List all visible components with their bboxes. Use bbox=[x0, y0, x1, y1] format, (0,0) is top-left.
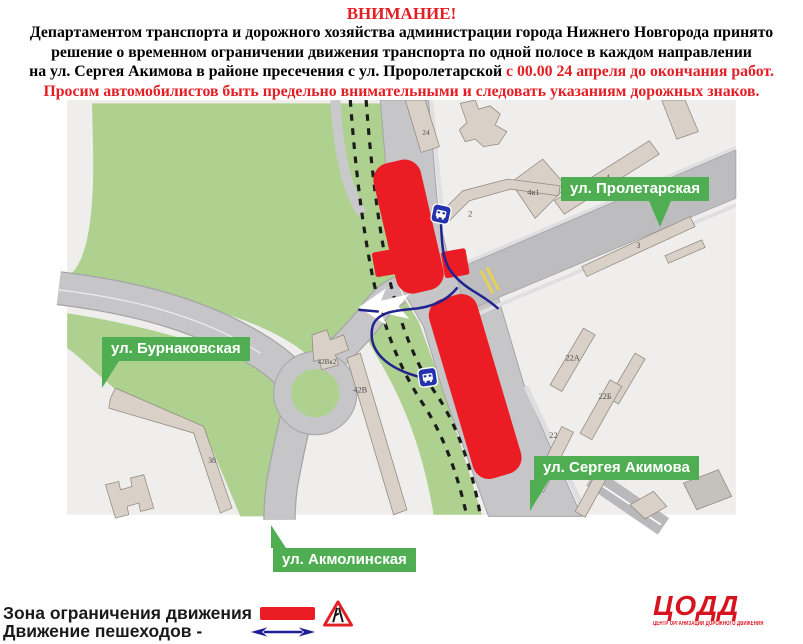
street-tag-burnakovskaya: ул. Бурнаковская bbox=[102, 337, 250, 361]
traffic-restriction-announcement: { "header": { "title": "ВНИМАНИЕ!", "lin… bbox=[0, 0, 803, 644]
building-label-42vk2: 42Вк2 bbox=[318, 358, 337, 366]
building-label-22: 22 bbox=[549, 431, 557, 440]
building-label-38: 38 bbox=[208, 456, 216, 465]
restriction-zone-swatch bbox=[260, 607, 315, 620]
alert-title: ВНИМАНИЕ! bbox=[0, 0, 803, 23]
alert-line-1: Департаментом транспорта и дорожного хоз… bbox=[0, 23, 803, 43]
building-label-4k1: 4к1 bbox=[527, 188, 539, 197]
street-tag-label: ул. Сергея Акимова bbox=[543, 459, 690, 476]
bus-stop-icon bbox=[430, 203, 452, 225]
codd-logo: ЦОДД ЦЕНТР ОРГАНИЗАЦИИ ДОРОЖНОГО ДВИЖЕНИ… bbox=[650, 578, 802, 640]
codd-logo-subtitle: ЦЕНТР ОРГАНИЗАЦИИ ДОРОЖНОГО ДВИЖЕНИЯ bbox=[653, 621, 764, 627]
alert-line-3-black: на ул. Сергея Акимова в районе пресечени… bbox=[29, 63, 506, 80]
restriction-pad-east bbox=[441, 248, 470, 279]
legend-pedestrian-row: Движение пешеходов - bbox=[3, 621, 316, 642]
building-label-2: 2 bbox=[468, 210, 472, 219]
building-label-42v: 42В bbox=[353, 385, 367, 394]
alert-line-4: Просим автомобилистов быть предельно вни… bbox=[0, 82, 803, 102]
pedestrian-double-arrow-icon bbox=[250, 625, 316, 639]
tag-pointer-icon bbox=[102, 361, 119, 388]
restriction-pad-west bbox=[372, 249, 398, 277]
alert-body: Департаментом транспорта и дорожного хоз… bbox=[0, 23, 803, 101]
alert-line-3-red: с 00.00 24 апреля до окончания работ. bbox=[506, 63, 774, 80]
street-tag-akmolinskaya: ул. Акмолинская bbox=[273, 548, 416, 572]
street-tag-akimova: ул. Сергея Акимова bbox=[534, 456, 699, 480]
alert-line-3: на ул. Сергея Акимова в районе пресечени… bbox=[0, 62, 803, 82]
street-tag-label: ул. Пролетарская bbox=[570, 180, 700, 197]
street-tag-proletarskaya: ул. Пролетарская bbox=[561, 177, 709, 201]
alert-line-2: решение о временном ограничении движения… bbox=[0, 43, 803, 63]
codd-logo-title: ЦОДД bbox=[653, 592, 803, 620]
building-label-22b: 22Б bbox=[599, 392, 612, 401]
street-tag-label: ул. Акмолинская bbox=[282, 551, 407, 568]
codd-logo-text: ЦОДД ЦЕНТР ОРГАНИЗАЦИИ ДОРОЖНОГО ДВИЖЕНИ… bbox=[653, 592, 803, 627]
building-label-3: 3 bbox=[636, 241, 640, 250]
alert-banner: ВНИМАНИЕ! Департаментом транспорта и дор… bbox=[0, 0, 803, 100]
legend-pedestrian-label: Движение пешеходов - bbox=[3, 621, 202, 642]
road-narrows-warning-icon bbox=[322, 599, 354, 628]
tag-pointer-icon bbox=[530, 480, 549, 511]
building-label-22a: 22А bbox=[565, 354, 579, 363]
roundabout-island bbox=[291, 369, 339, 417]
street-tag-label: ул. Бурнаковская bbox=[111, 340, 241, 357]
tag-pointer-icon bbox=[271, 525, 286, 548]
tag-pointer-icon bbox=[649, 201, 671, 227]
bus-stop-icon bbox=[417, 367, 438, 388]
building-label-24: 24 bbox=[422, 128, 430, 137]
